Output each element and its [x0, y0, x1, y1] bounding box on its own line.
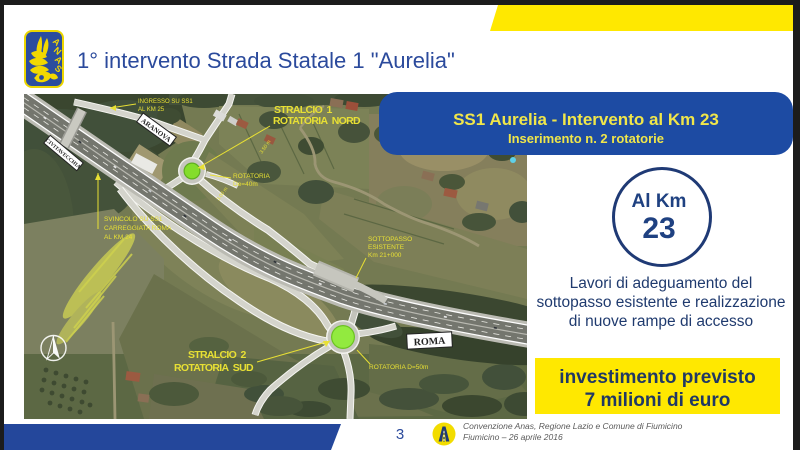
svg-text:ROTATORIA: ROTATORIA: [233, 173, 271, 180]
svg-text:De=40m: De=40m: [233, 181, 258, 188]
svg-text:ROTATORIA NORD: ROTATORIA NORD: [273, 115, 361, 127]
svg-text:SVINCOLO SU SS1: SVINCOLO SU SS1: [104, 216, 163, 223]
svg-text:ESISTENTE: ESISTENTE: [368, 244, 405, 251]
svg-text:AL KM 24: AL KM 24: [104, 234, 133, 241]
svg-text:ROTATORIA SUD: ROTATORIA SUD: [174, 362, 254, 374]
svg-text:ROTATORIA D=50m: ROTATORIA D=50m: [369, 364, 428, 371]
svg-text:INGRESSO SU SS1: INGRESSO SU SS1: [138, 99, 193, 105]
svg-text:CARREGGIATA ROMA: CARREGGIATA ROMA: [104, 225, 172, 232]
svg-text:SOTTOPASSO: SOTTOPASSO: [368, 236, 412, 243]
svg-text:STRALCIO 2: STRALCIO 2: [188, 349, 246, 361]
svg-text:ROMA: ROMA: [413, 336, 446, 349]
svg-text:AL KM 25: AL KM 25: [138, 107, 165, 113]
svg-text:Km 21+000: Km 21+000: [368, 252, 402, 259]
